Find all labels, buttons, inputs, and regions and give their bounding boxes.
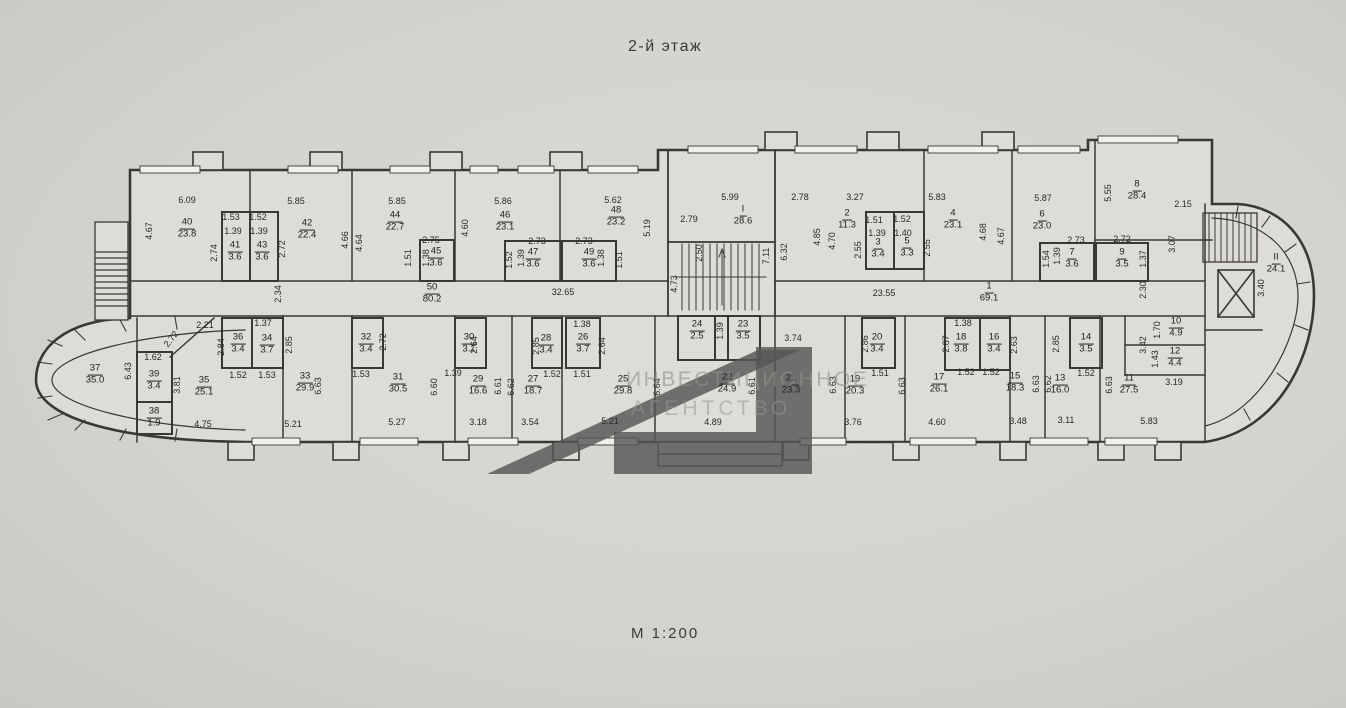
dimension-label: 6.63: [897, 377, 907, 395]
dimension-label: 1.51: [865, 215, 883, 225]
room-label-13: 1316.0: [1051, 374, 1070, 397]
dimension-label: 3.76: [844, 417, 862, 427]
dimension-label: 2.30: [1138, 281, 1148, 299]
dimension-label: 6.62: [1043, 375, 1053, 393]
room-label-23: 233.5: [736, 320, 751, 343]
dimension-label: 4.67: [996, 227, 1006, 245]
dimension-label: 2.72: [277, 240, 287, 258]
room-label-5: 53.3: [900, 237, 913, 260]
dimension-label: 1.70: [1152, 321, 1162, 339]
dimension-label: 2.72: [378, 333, 388, 351]
dimension-label: 4.60: [928, 417, 946, 427]
room-label-2: 211.3: [838, 209, 856, 232]
dimension-label: 2.55: [853, 241, 863, 259]
room-label-37: 3735.0: [86, 364, 105, 387]
dimension-label: 1.53: [222, 212, 240, 222]
dimension-label: 1.37: [1138, 250, 1148, 268]
dimension-label: 1.38: [954, 318, 972, 328]
dimension-label: 32.65: [552, 287, 575, 297]
dimension-label: 1.52: [249, 212, 267, 222]
dimension-label: 1.54: [1041, 250, 1051, 268]
dimension-label: 1.39: [1052, 247, 1062, 265]
room-label-44: 4422.7: [386, 211, 405, 234]
room-label-36: 363.4: [231, 333, 246, 356]
dimension-label: 4.68: [978, 223, 988, 241]
dimension-label: 1.52: [957, 367, 975, 377]
dimension-label: 3.27: [846, 192, 864, 202]
dimension-label: 2.74: [209, 244, 219, 262]
dimension-label: 2.87: [941, 335, 951, 353]
room-label-24: 242.5: [690, 320, 705, 343]
dimension-label: 1.38: [596, 249, 606, 267]
room-label-26: 263.7: [576, 333, 591, 356]
dimension-label: 1.52: [543, 369, 561, 379]
dimension-label: 4.60: [460, 219, 470, 237]
floor-plan-drawing: [0, 0, 1346, 708]
room-label-18: 183.8: [954, 333, 969, 356]
dimension-label: 6.61: [493, 377, 503, 395]
dimension-label: 4.66: [340, 231, 350, 249]
room-label-12: 124.4: [1168, 347, 1183, 370]
room-label-20: 203.4: [870, 333, 885, 356]
dimension-label: 6.09: [178, 195, 196, 205]
dimension-label: 2.73: [575, 236, 593, 246]
dimension-label: 5.86: [494, 196, 512, 206]
room-label-3: 33.4: [871, 238, 884, 261]
dimension-label: 1.51: [573, 369, 591, 379]
dimension-label: 1.38: [421, 249, 431, 267]
room-label-40: 4023.8: [178, 218, 197, 241]
dimension-label: 3.07: [1167, 235, 1177, 253]
dimension-label: 5.21: [284, 419, 302, 429]
dimension-label: 5.62: [604, 195, 622, 205]
dimension-label: 2.85: [531, 337, 541, 355]
dimension-label: 5.87: [1034, 193, 1052, 203]
dimension-label: 4.70: [827, 232, 837, 250]
dimension-label: 2.78: [791, 192, 809, 202]
dimension-label: 3.54: [521, 417, 539, 427]
dimension-label: 1.53: [258, 370, 276, 380]
room-label-48: 4823.2: [607, 206, 626, 229]
dimension-label: 5.83: [928, 192, 946, 202]
dimension-label: 2.75: [422, 235, 440, 245]
dimension-label: 2.63: [1009, 336, 1019, 354]
room-label-41: 413.6: [228, 241, 243, 264]
dimension-label: 4.85: [812, 228, 822, 246]
dimension-label: 1.40: [894, 228, 912, 238]
dimension-label: 1.53: [352, 369, 370, 379]
room-label-33: 3329.9: [296, 372, 315, 395]
dimension-label: 4.64: [354, 234, 364, 252]
dimension-label: 2.34: [273, 285, 283, 303]
dimension-label: 1.51: [403, 249, 413, 267]
room-label-47: 473.6: [526, 248, 541, 271]
room-label-29: 2916.6: [469, 375, 488, 398]
dimension-label: 2.79: [680, 214, 698, 224]
room-label-II: II24.1: [1267, 253, 1286, 276]
dimension-label: 1.37: [254, 318, 272, 328]
dimension-label: 2.84: [216, 338, 226, 356]
room-label-49: 493.6: [582, 248, 597, 271]
dimension-label: 6.60: [429, 378, 439, 396]
watermark-line2: АГЕНТСТВО: [631, 397, 791, 421]
dimension-label: 6.32: [779, 243, 789, 261]
room-label-8: 828.4: [1128, 180, 1147, 203]
dimension-label: 2.15: [1174, 199, 1192, 209]
scanned-floor-plan-page: 2-й этаж М 1:200 ИНВЕСТИЦИОННОЕ АГЕНТСТВ…: [0, 0, 1346, 708]
room-label-15: 1518.3: [1006, 372, 1025, 395]
room-label-38: 381.9: [147, 407, 162, 430]
dimension-label: 5.85: [388, 196, 406, 206]
dimension-label: 2.85: [284, 336, 294, 354]
dimension-label: 5.21: [601, 416, 619, 426]
dimension-label: 1.52: [229, 370, 247, 380]
dimension-label: 1.52: [893, 214, 911, 224]
room-label-50: 5080.2: [423, 283, 442, 306]
room-label-11: 1127.5: [1120, 374, 1139, 397]
room-label-31: 3130.5: [389, 373, 408, 396]
dimension-label: 1.52: [1077, 368, 1095, 378]
dimension-label: 4.67: [144, 222, 154, 240]
dimension-label: 3.18: [469, 417, 487, 427]
room-label-42: 4222.4: [298, 219, 317, 242]
dimension-label: 5.27: [388, 417, 406, 427]
scale-label: М 1:200: [631, 625, 699, 642]
room-label-27: 2718.7: [524, 375, 543, 398]
dimension-label: 2.55: [922, 239, 932, 257]
dimension-label: 1.39: [224, 226, 242, 236]
dimension-label: 5.99: [721, 192, 739, 202]
dimension-label: 6.43: [123, 362, 133, 380]
dimension-label: 1.39: [868, 228, 886, 238]
dimension-label: 2.64: [597, 337, 607, 355]
dimension-label: 4.73: [669, 275, 679, 293]
dimension-label: 3.19: [1165, 377, 1183, 387]
room-label-34: 343.7: [260, 334, 275, 357]
dimension-label: 2.21: [196, 320, 214, 330]
dimension-label: 1.51: [614, 251, 624, 269]
dimension-label: 3.48: [1009, 416, 1027, 426]
dimension-label: 5.55: [1103, 184, 1113, 202]
dimension-label: 3.40: [1256, 279, 1266, 297]
floor-title: 2-й этаж: [628, 38, 702, 56]
external-stair: [95, 222, 128, 320]
room-label-6: 623.0: [1033, 210, 1052, 233]
room-label-32: 323.4: [359, 333, 374, 356]
room-label-9: 93.5: [1115, 248, 1128, 271]
dimension-label: 1.38: [573, 319, 591, 329]
dimension-label: 1.39: [715, 322, 725, 340]
dimension-label: 2.50: [694, 244, 704, 262]
dimension-label: 6.63: [1031, 375, 1041, 393]
room-label-39: 393.4: [147, 370, 162, 393]
room-label-7: 73.6: [1065, 248, 1078, 271]
dimension-label: 2.72: [1113, 234, 1131, 244]
dimension-label: 1.39: [516, 249, 526, 267]
room-label-43: 433.6: [255, 241, 270, 264]
dimension-label: 1.51: [871, 368, 889, 378]
dimension-label: 2.85: [1051, 335, 1061, 353]
watermark-line1: ИНВЕСТИЦИОННОЕ: [626, 368, 869, 392]
dimension-label: 3.42: [1138, 336, 1148, 354]
dimension-label: 3.11: [1058, 415, 1075, 425]
room-label-1: 169.1: [980, 282, 999, 305]
room-label-I: I28.6: [734, 205, 753, 228]
dimension-label: 1.62: [144, 352, 162, 362]
dimension-label: 1.43: [1150, 350, 1160, 368]
dimension-label: 6.63: [1104, 376, 1114, 394]
dimension-label: 5.19: [642, 219, 652, 237]
dimension-label: 6.62: [506, 378, 516, 396]
dimension-label: 7.11: [761, 248, 771, 265]
room-label-10: 104.9: [1169, 317, 1184, 340]
room-label-14: 143.5: [1079, 333, 1094, 356]
room-label-4: 423.1: [944, 209, 963, 232]
dimension-label: 2.64: [469, 336, 479, 354]
dimension-label: 1.52: [504, 251, 514, 269]
room-label-16: 163.4: [987, 333, 1002, 356]
dimension-label: 4.75: [194, 419, 212, 429]
dimension-label: 1.52: [982, 367, 1000, 377]
dimension-label: 2.73: [528, 236, 546, 246]
dimension-label: 3.74: [784, 333, 802, 343]
room-label-46: 4623.1: [496, 211, 515, 234]
room-label-35: 3525.1: [195, 376, 214, 399]
dimension-label: 1.39: [250, 226, 268, 236]
dimension-label: 23.55: [873, 288, 896, 298]
dimension-label: 3.81: [172, 376, 182, 394]
dimension-label: 6.63: [313, 377, 323, 395]
room-label-17: 1726.1: [930, 373, 949, 396]
dimension-label: 5.83: [1140, 416, 1158, 426]
dimension-label: 1.39: [444, 368, 462, 378]
dimension-label: 2.73: [1067, 235, 1085, 245]
dimension-label: 5.85: [287, 196, 305, 206]
dimension-label: 2.86: [860, 335, 870, 353]
